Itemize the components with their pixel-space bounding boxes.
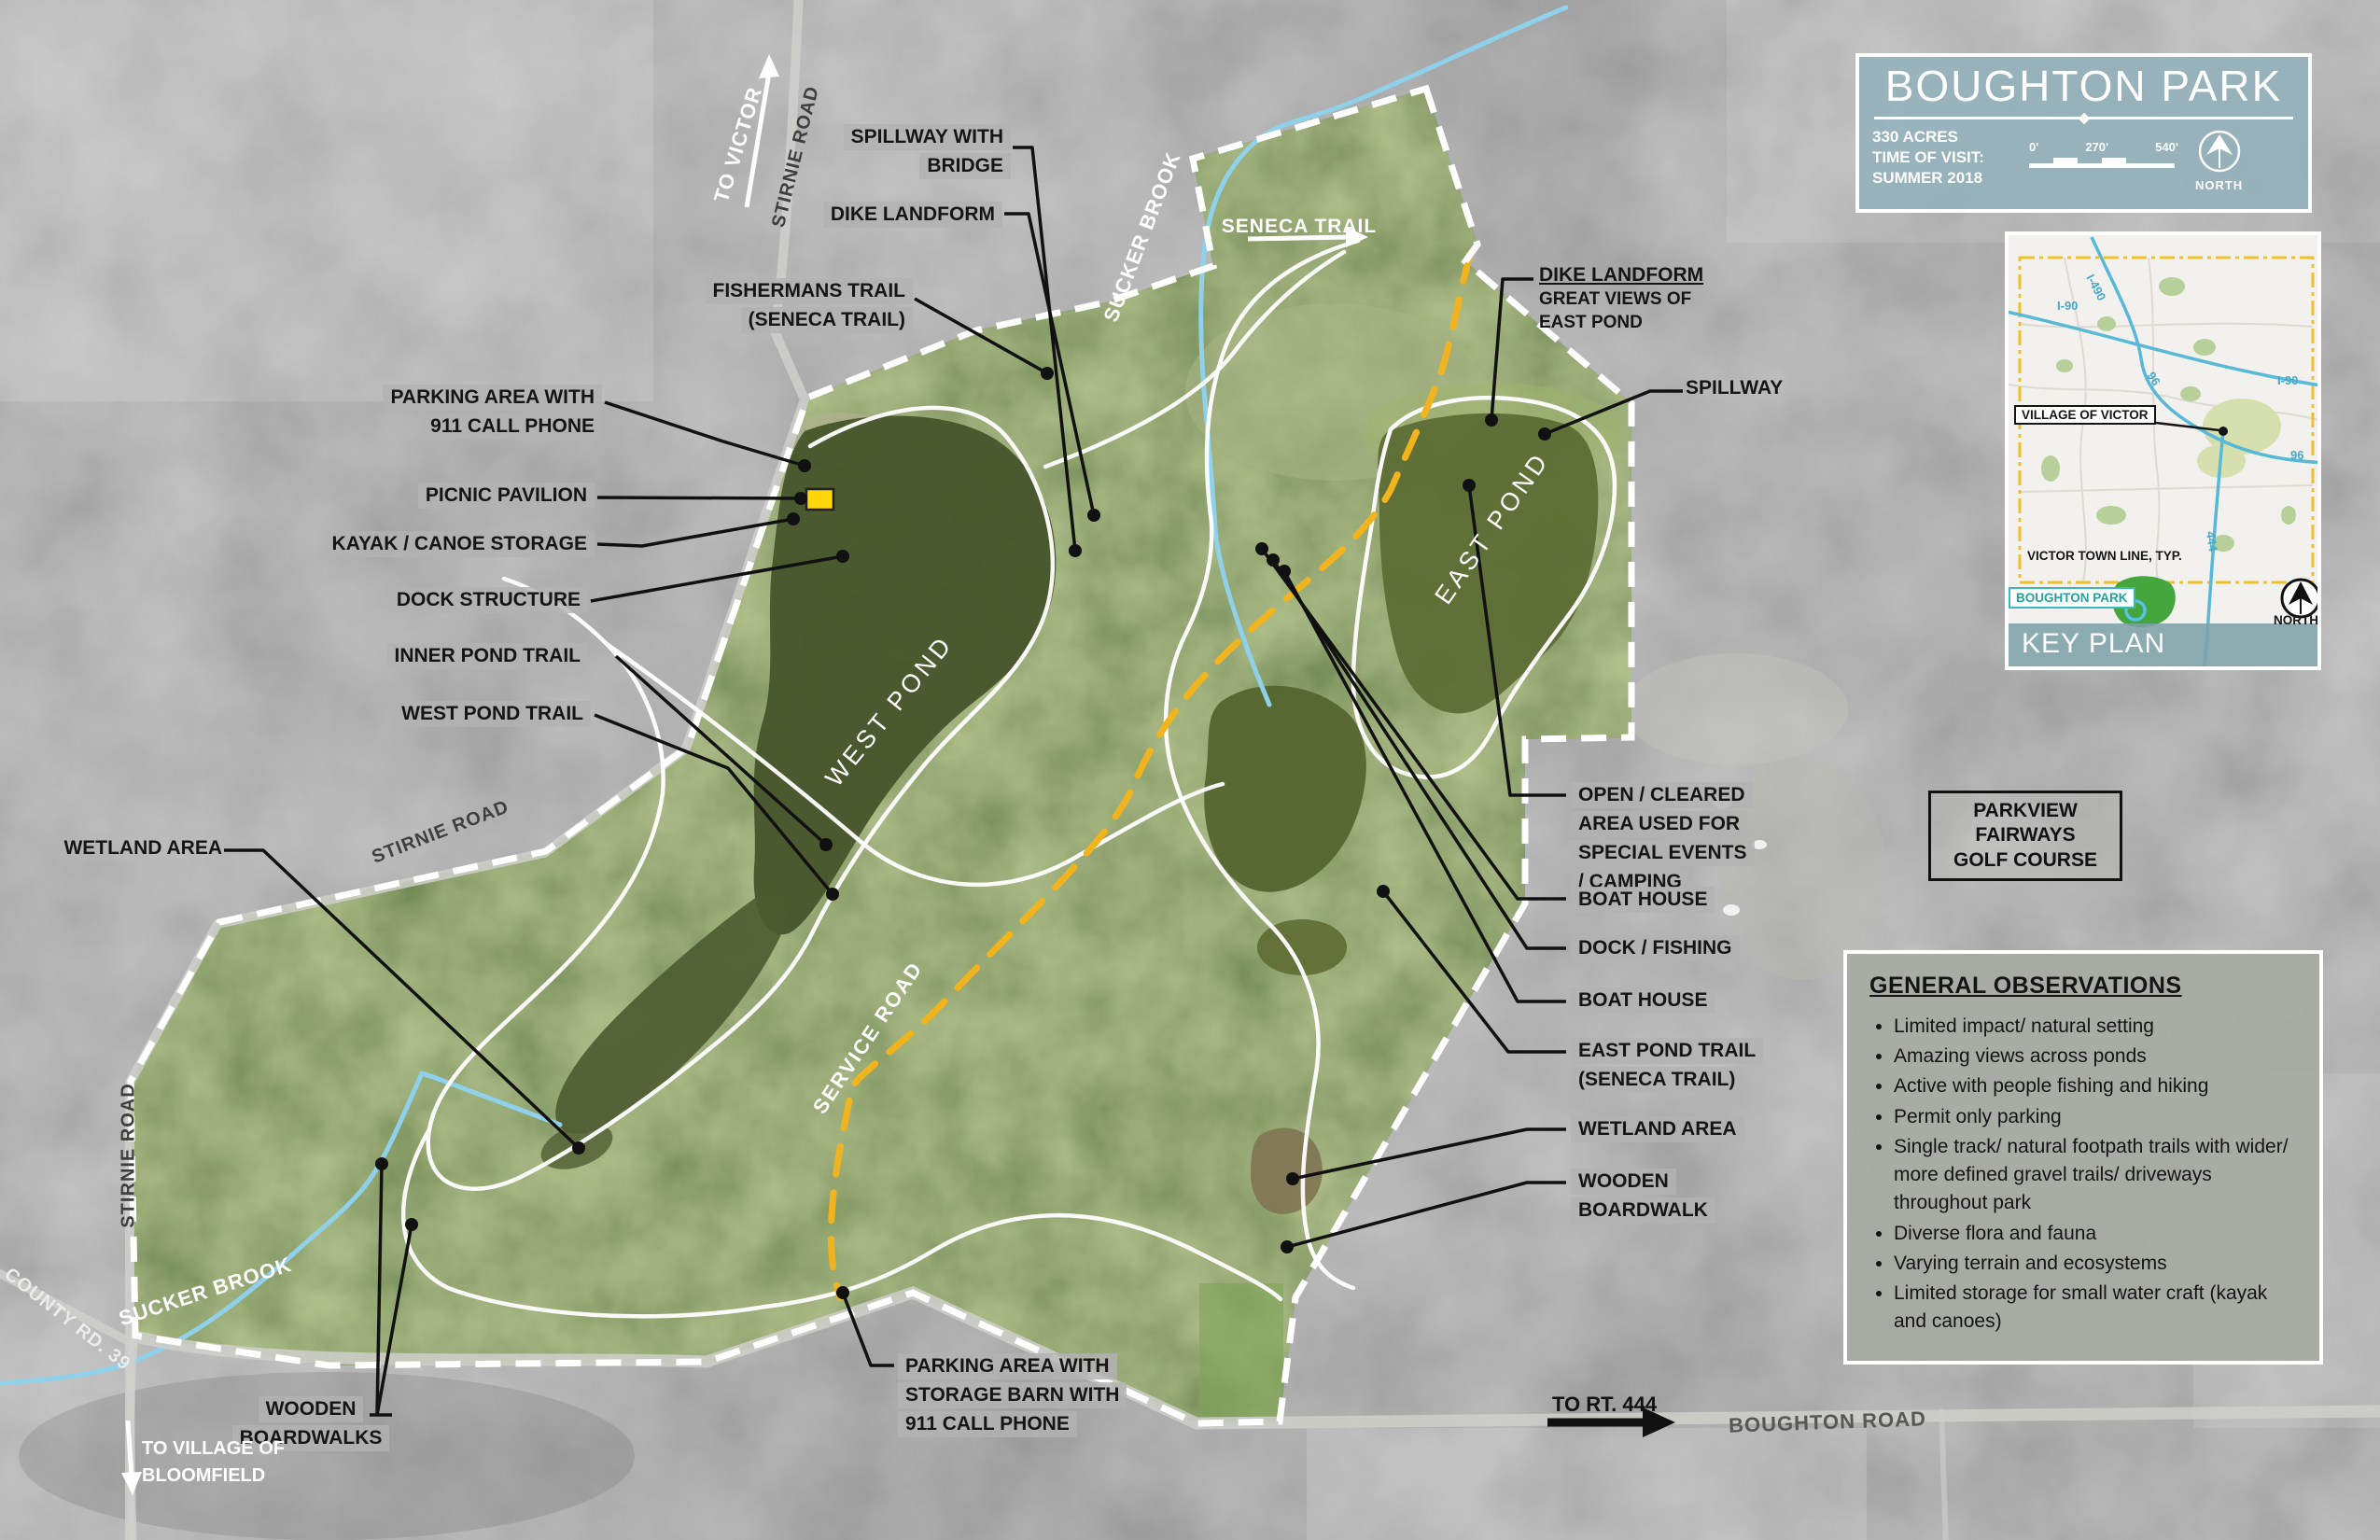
- label-fishermans-trail: FISHERMANS TRAIL (SENECA TRAIL): [706, 278, 914, 333]
- north-arrow-icon: NORTH: [2195, 129, 2243, 192]
- list-item: Diverse flora and fauna: [1894, 1220, 2297, 1248]
- label-wetland-area-east: WETLAND AREA: [1571, 1116, 1744, 1142]
- svg-text:444: 444: [2204, 530, 2220, 553]
- label-to-bloomfield: TO VILLAGE OF BLOOMFIELD: [142, 1435, 285, 1490]
- picnic-pavilion-marker: [806, 489, 833, 510]
- observations-title: GENERAL OBSERVATIONS: [1869, 973, 2297, 1000]
- label-boat-house-2: BOAT HOUSE: [1571, 987, 1715, 1014]
- label-wetland-area-west: WETLAND AREA: [63, 837, 222, 860]
- svg-text:96: 96: [2290, 448, 2303, 462]
- list-item: Varying terrain and ecosystems: [1894, 1250, 2297, 1278]
- label-open-cleared-area: OPEN / CLEARED AREA USED FOR SPECIAL EVE…: [1571, 782, 1755, 896]
- boughton-park-badge: BOUGHTON PARK: [2009, 587, 2135, 609]
- label-dike-landform-east: DIKE LANDFORM GREAT VIEWS OF EAST POND: [1539, 264, 1703, 333]
- scale-bar: 0' 270' 540': [2029, 140, 2178, 168]
- label-parkview-fairways: PARKVIEW FAIRWAYS GOLF COURSE: [1928, 791, 2122, 881]
- label-east-pond-trail: EAST POND TRAIL (SENECA TRAIL): [1571, 1038, 1763, 1093]
- label-west-pond-trail: WEST POND TRAIL: [394, 701, 591, 727]
- keyplan-north-label: NORTH: [2274, 613, 2318, 627]
- label-parking-911: PARKING AREA WITH 911 CALL PHONE: [383, 385, 602, 440]
- label-kayak-canoe-storage: KAYAK / CANOE STORAGE: [325, 531, 595, 557]
- title-block: BOUGHTON PARK 330 ACRES TIME OF VISIT: S…: [1855, 53, 2312, 213]
- list-item: Permit only parking: [1894, 1103, 2297, 1131]
- label-boat-house-1: BOAT HOUSE: [1571, 887, 1715, 913]
- label-dock-fishing: DOCK / FISHING: [1571, 935, 1740, 961]
- list-item: Amazing views across ponds: [1894, 1043, 2297, 1071]
- key-plan: I-490 I-90 I-90 96 96 444 VILLAGE OF VIC…: [2005, 231, 2321, 670]
- label-stirnie-road-left: STIRNIE ROAD: [119, 1083, 140, 1227]
- label-wooden-boardwalk: WOODEN BOARDWALK: [1571, 1169, 1715, 1224]
- label-picnic-pavilion: PICNIC PAVILION: [418, 483, 595, 509]
- key-plan-titlebar: KEY PLAN: [2009, 623, 2317, 666]
- victor-town-line-label: VICTOR TOWN LINE, TYP.: [2027, 549, 2182, 563]
- svg-text:I-90: I-90: [2057, 299, 2078, 313]
- list-item: Single track/ natural footpath trails wi…: [1894, 1133, 2297, 1218]
- label-spillway: SPILLWAY: [1686, 377, 1783, 399]
- label-to-rt444: TO RT. 444: [1552, 1393, 1657, 1417]
- label-spillway-with-bridge: SPILLWAY WITH BRIDGE: [844, 124, 1011, 179]
- list-item: Limited storage for small water craft (k…: [1894, 1280, 2297, 1336]
- list-item: Active with people fishing and hiking: [1894, 1072, 2297, 1100]
- observations-list: Limited impact/ natural setting Amazing …: [1869, 1013, 2297, 1337]
- poster-title: BOUGHTON PARK: [1859, 61, 2308, 111]
- general-observations-panel: GENERAL OBSERVATIONS Limited impact/ nat…: [1843, 950, 2323, 1365]
- golf-fairway: [1624, 653, 1848, 765]
- village-of-victor-label: VILLAGE OF VICTOR: [2014, 405, 2156, 425]
- label-parking-storage-barn: PARKING AREA WITH STORAGE BARN WITH 911 …: [898, 1353, 1127, 1437]
- park-map-poster: SPILLWAY WITH BRIDGE DIKE LANDFORM FISHE…: [0, 0, 2380, 1540]
- svg-text:I-90: I-90: [2277, 373, 2298, 387]
- label-dock-structure: DOCK STRUCTURE: [389, 587, 588, 613]
- label-seneca-trail: SENECA TRAIL: [1222, 216, 1377, 238]
- label-dike-landform: DIKE LANDFORM: [823, 202, 1002, 228]
- title-meta: 330 ACRES TIME OF VISIT: SUMMER 2018: [1872, 127, 1984, 189]
- keyplan-north-icon: [2282, 580, 2319, 617]
- label-inner-pond-trail: INNER POND TRAIL: [387, 643, 589, 669]
- list-item: Limited impact/ natural setting: [1894, 1013, 2297, 1041]
- title-divider: [1874, 117, 2293, 119]
